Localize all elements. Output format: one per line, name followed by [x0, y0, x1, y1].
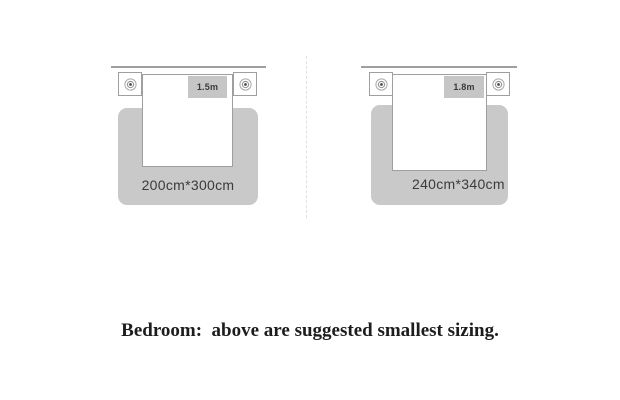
lamp-icon [491, 77, 506, 92]
rug-size-label: 200cm*300cm [118, 177, 258, 193]
bed-width-label: 1.8m [453, 82, 474, 92]
lamp-icon [238, 77, 253, 92]
caption-line-1: Bedroom: above are suggested smallest si… [0, 316, 620, 345]
nightstand-left [118, 72, 142, 96]
bed-width-tag: 1.8m [444, 76, 484, 98]
lamp-icon [374, 77, 389, 92]
nightstand-right [233, 72, 257, 96]
wall-line [111, 66, 266, 68]
lamp-icon [123, 77, 138, 92]
nightstand-left [369, 72, 393, 96]
wall-line [361, 66, 517, 68]
divider-line [306, 56, 307, 218]
bed-width-tag: 1.5m [188, 76, 227, 98]
bed-width-label: 1.5m [197, 82, 218, 92]
caption: Bedroom: above are suggested smallest si… [0, 258, 620, 400]
rug-size-guide: 1.5m 200cm*300cm 1.8m [0, 0, 620, 400]
rug-size-label: 240cm*340cm [412, 176, 505, 192]
nightstand-right [486, 72, 510, 96]
